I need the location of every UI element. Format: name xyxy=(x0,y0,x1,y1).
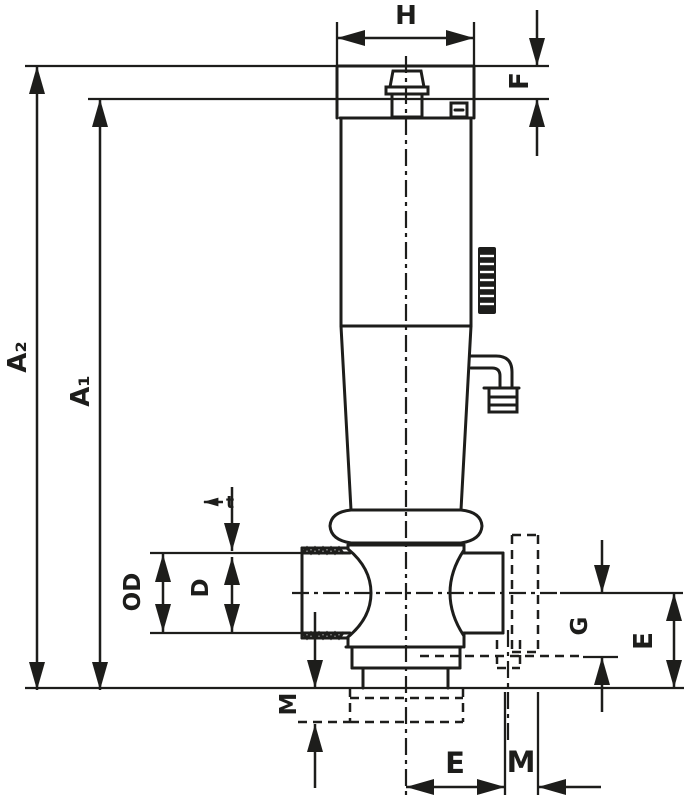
dim-label-m-bottom: M xyxy=(507,745,536,779)
dim-label-d: D xyxy=(188,578,214,597)
dim-label-m-left: M xyxy=(276,693,302,716)
dim-label-a2: A₂ xyxy=(3,341,33,373)
taper-right xyxy=(461,326,471,510)
dimension-lines xyxy=(37,10,674,788)
dim-label-a1: A₁ xyxy=(66,375,96,407)
dim-label-h: H xyxy=(395,1,417,31)
hidden-lines xyxy=(298,535,582,722)
extension-lines xyxy=(25,22,684,795)
technical-drawing-page: H F A₂ A₁ t OD D M G E E M xyxy=(0,0,686,800)
centerlines xyxy=(292,56,560,795)
taper-left xyxy=(341,326,351,510)
dim-label-f: F xyxy=(505,72,535,90)
dim-label-g: G xyxy=(567,617,593,636)
lever-outer xyxy=(471,356,512,388)
lever-nut xyxy=(489,388,517,412)
lever-inner xyxy=(471,368,500,388)
dim-label-od: OD xyxy=(120,573,146,612)
part-outline xyxy=(302,66,519,688)
dim-label-e-bottom: E xyxy=(445,746,465,780)
dim-label-t: t xyxy=(226,493,234,513)
valve-dimensional-drawing: H F A₂ A₁ t OD D M G E E M xyxy=(0,0,686,800)
arrowheads xyxy=(29,30,682,795)
dim-label-e-right: E xyxy=(629,632,659,650)
serration-detail xyxy=(478,247,496,314)
